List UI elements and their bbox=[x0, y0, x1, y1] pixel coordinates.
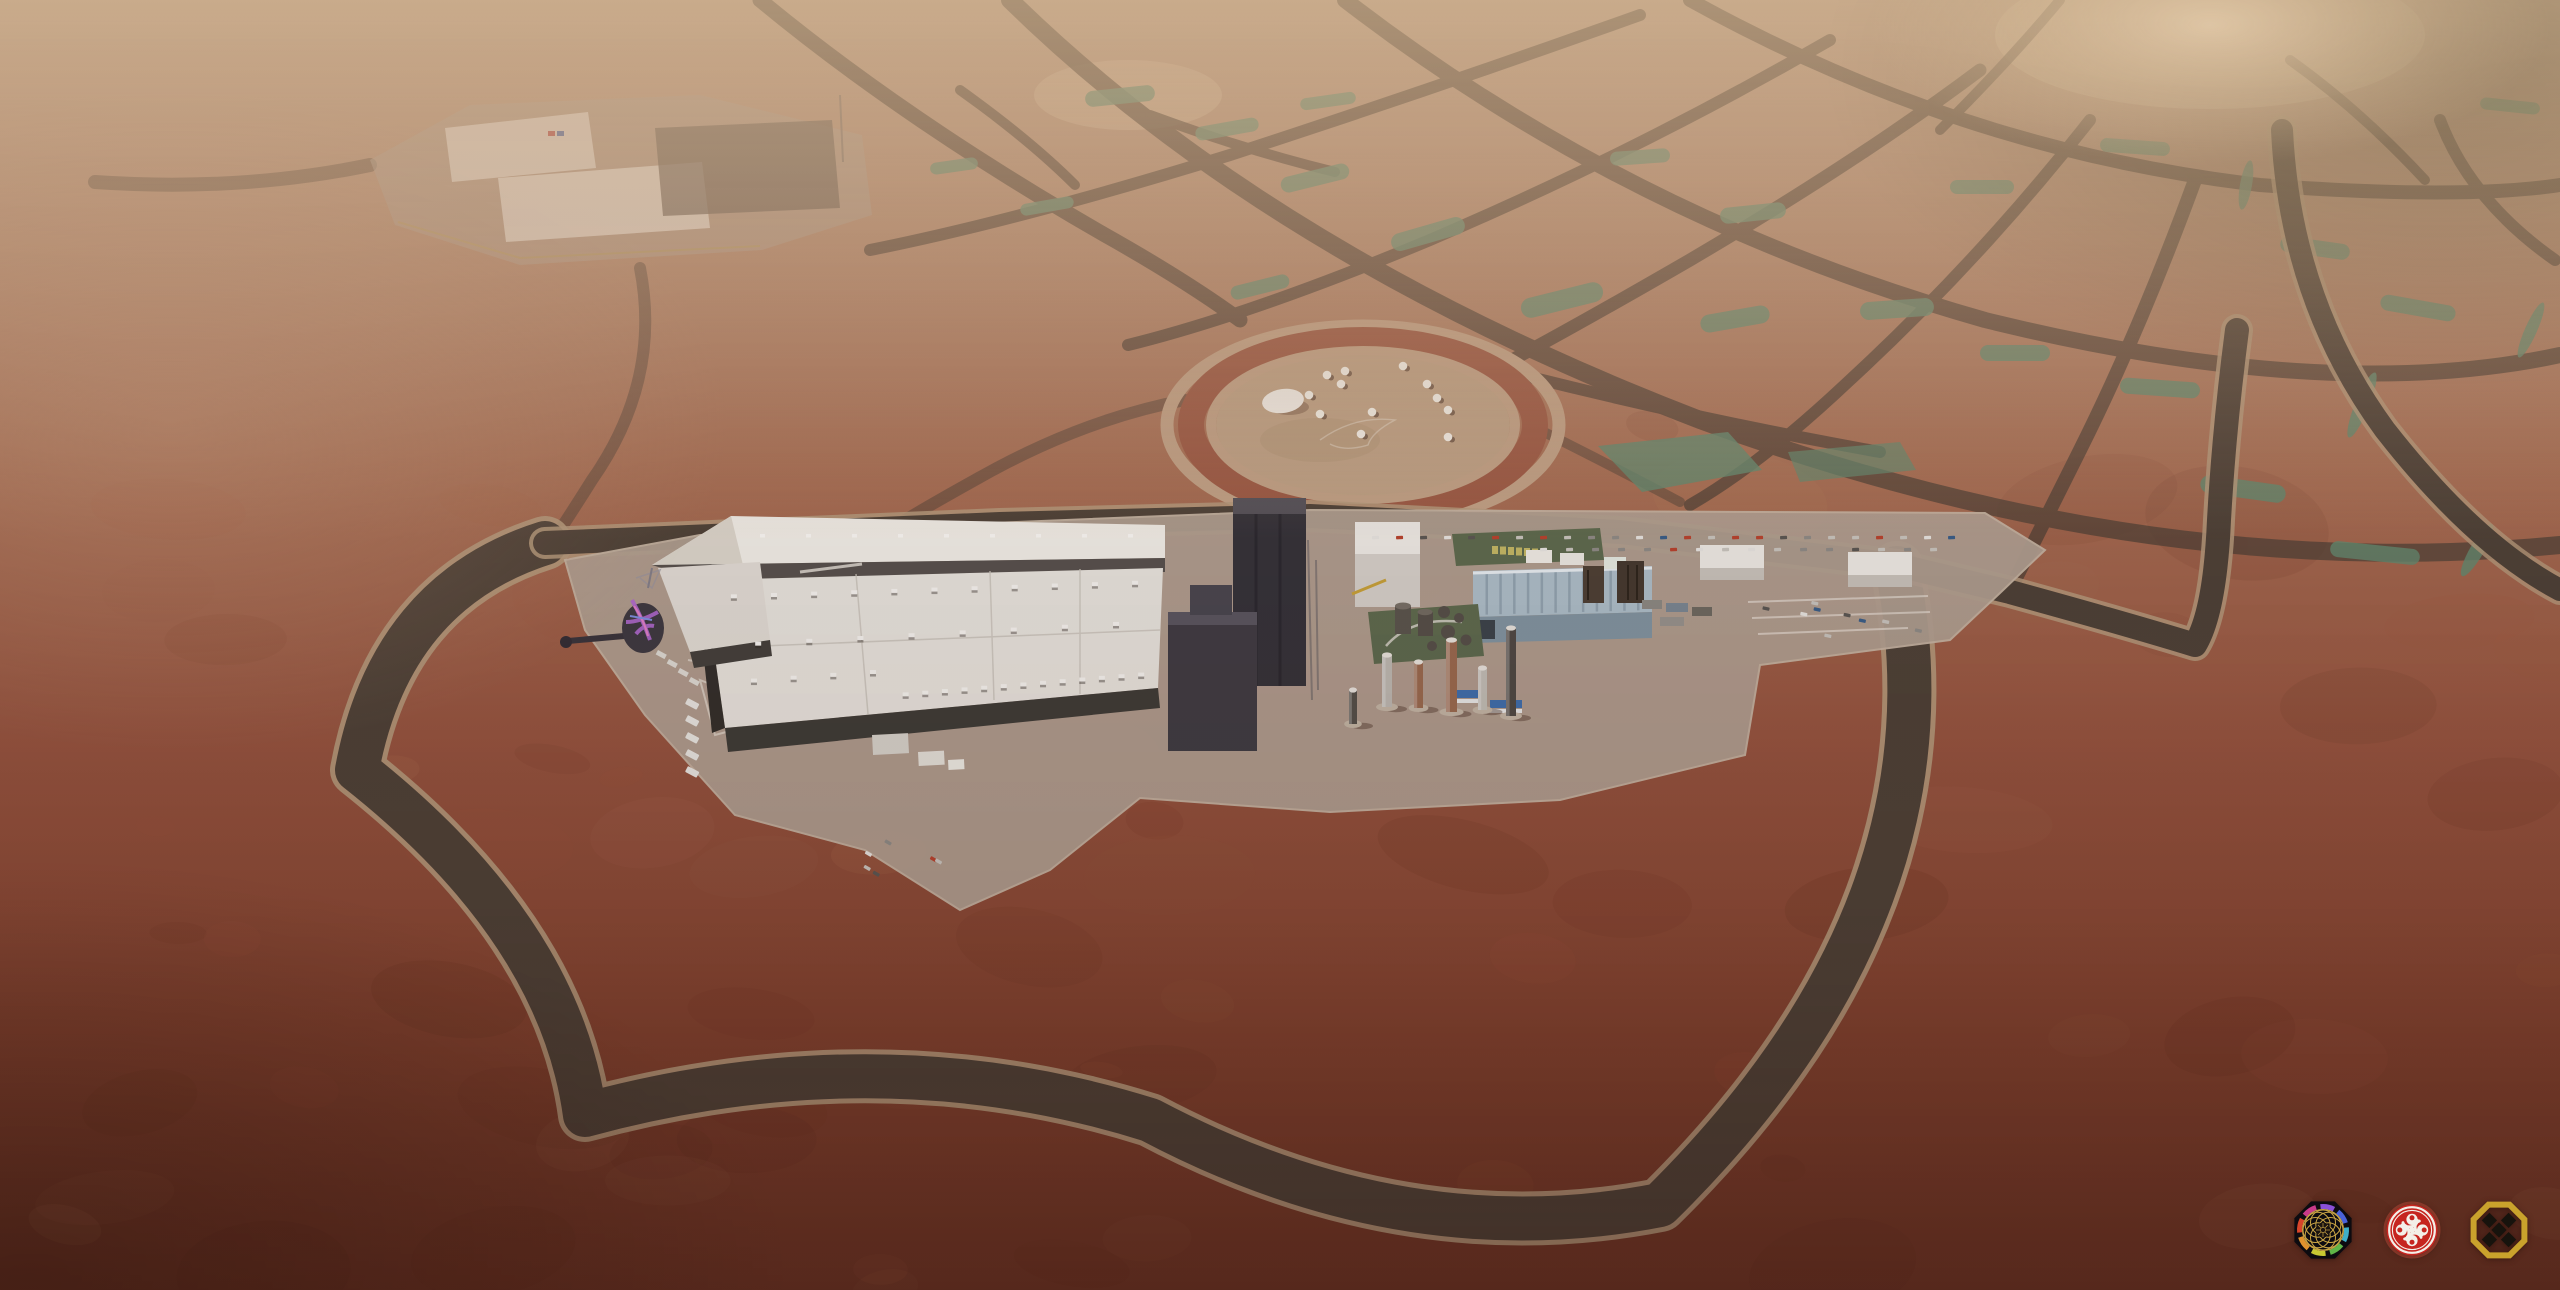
red-swirl-emblem-button[interactable] bbox=[2383, 1201, 2441, 1259]
white-hangar-b bbox=[1848, 552, 1912, 587]
red-swirl-icon bbox=[2383, 1201, 2441, 1259]
dark-warehouse bbox=[655, 120, 840, 216]
flower-octagon-icon bbox=[2290, 1197, 2356, 1263]
annex-a bbox=[872, 733, 909, 755]
tent-plaza bbox=[1167, 326, 1559, 524]
hud-emblem-bar bbox=[2290, 1197, 2530, 1263]
flower-octagon-emblem-button[interactable] bbox=[2290, 1197, 2356, 1263]
game-viewport bbox=[0, 0, 2560, 1290]
gold-diamonds-emblem-button[interactable] bbox=[2468, 1199, 2530, 1261]
aerial-scene bbox=[0, 0, 2560, 1290]
office-building bbox=[1355, 522, 1420, 607]
annex-b bbox=[918, 751, 945, 766]
gold-diamonds-icon bbox=[2468, 1199, 2530, 1261]
